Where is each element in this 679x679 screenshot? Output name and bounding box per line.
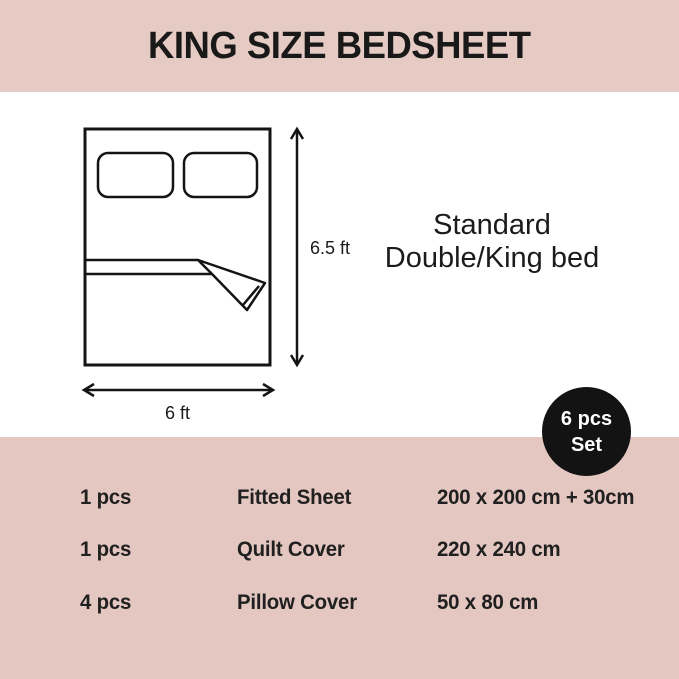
height-arrow (291, 129, 303, 365)
product-infographic: KING SIZE BEDSHEET 6.5 ft (0, 0, 679, 679)
bed-outline (85, 129, 270, 365)
qty-cell: 1 pcs (80, 538, 131, 562)
width-dimension-label: 6 ft (165, 403, 190, 423)
size-cell: 220 x 240 cm (437, 538, 560, 562)
bed-diagram: 6.5 ft 6 ft (60, 100, 380, 430)
bed-type-caption: Standard Double/King bed (372, 209, 612, 275)
qty-cell: 1 pcs (80, 486, 131, 510)
title-banner: KING SIZE BEDSHEET (0, 0, 679, 92)
width-arrow (84, 384, 273, 396)
badge-word: Set (571, 432, 602, 458)
bed-type-line2: Double/King bed (372, 242, 612, 275)
pillow-left-icon (98, 153, 173, 197)
set-count-badge: 6 pcs Set (542, 387, 631, 476)
badge-count: 6 pcs (561, 406, 612, 432)
item-cell: Quilt Cover (237, 538, 345, 562)
height-dimension-label: 6.5 ft (310, 238, 350, 258)
qty-cell: 4 pcs (80, 591, 131, 615)
sheet-fold-corner (198, 260, 265, 310)
item-cell: Pillow Cover (237, 591, 357, 615)
pillow-right-icon (184, 153, 257, 197)
size-cell: 50 x 80 cm (437, 591, 538, 615)
item-cell: Fitted Sheet (237, 486, 351, 510)
diagram-section: 6.5 ft 6 ft Standard Double/King bed (0, 92, 679, 438)
table-row: 1 pcs Fitted Sheet 200 x 200 cm + 30cm (0, 486, 679, 512)
size-cell: 200 x 200 cm + 30cm (437, 486, 634, 510)
table-row: 1 pcs Quilt Cover 220 x 240 cm (0, 538, 679, 564)
table-row: 4 pcs Pillow Cover 50 x 80 cm (0, 591, 679, 617)
page-title: KING SIZE BEDSHEET (148, 25, 531, 68)
bed-type-line1: Standard (372, 209, 612, 242)
